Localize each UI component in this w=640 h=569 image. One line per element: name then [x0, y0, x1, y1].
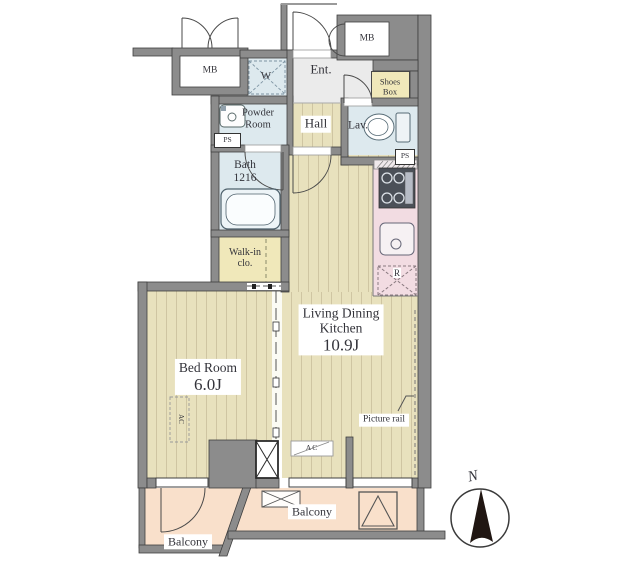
hall-label: Hall	[301, 116, 331, 133]
bedroom-size-label: 6.0J	[179, 375, 237, 394]
powder-room-label: Powder Room	[242, 107, 274, 131]
entrance-door-icon	[293, 12, 331, 50]
entrance-label: Ent.	[310, 63, 331, 78]
ldk-label-line1: Living Dining	[303, 305, 380, 320]
lavatory-label: Lav.	[348, 120, 368, 133]
shoes-box-label-line2: Box	[380, 87, 400, 97]
ps-right-label: PS	[395, 149, 415, 165]
balcony-left-label: Balcony	[164, 534, 212, 549]
entrance-floor	[293, 58, 373, 103]
balcony-right-label: Balcony	[288, 504, 336, 519]
mb-right-door-icon	[329, 24, 345, 56]
ac-living-label: AC	[306, 444, 318, 452]
compass-icon	[451, 489, 509, 547]
walkin-label-line1: Walk-in	[229, 247, 261, 258]
floor-plan: MB MB W Ent. Shoes Box Powder Room Hall …	[0, 0, 640, 569]
powder-label-line2: Room	[242, 119, 274, 131]
mb-left-door-icon	[182, 18, 212, 48]
picture-rail-label: Picture rail	[359, 414, 409, 427]
bath-label: Bath 1216	[234, 159, 257, 185]
w-closet-label: W	[261, 70, 271, 82]
walkin-closet-label: Walk-in clo.	[229, 247, 261, 269]
mb-right-label: MB	[360, 34, 375, 45]
ldk-label: Living Dining Kitchen 10.9J	[299, 304, 384, 355]
walkin-label-line2: clo.	[229, 258, 261, 269]
ldk-label-line2: Kitchen	[303, 320, 380, 335]
bath-label-line1: Bath	[234, 159, 257, 172]
bath-label-line2: 1216	[234, 172, 257, 185]
shoes-box-label: Shoes Box	[380, 77, 400, 96]
ldk-size-label: 10.9J	[303, 336, 380, 355]
bedroom-label: Bed Room 6.0J	[175, 359, 241, 395]
ps-left-label: PS	[214, 133, 241, 148]
room-divider-track	[272, 291, 282, 440]
mb-left-door2-icon	[208, 18, 238, 48]
bedroom-name-label: Bed Room	[179, 360, 237, 375]
windows	[156, 478, 412, 487]
ac-bedroom-label: AC	[176, 414, 184, 424]
compass-north-label: N	[466, 468, 479, 487]
mb-left-label: MB	[203, 66, 218, 77]
powder-label-line1: Powder	[242, 107, 274, 119]
refrigerator-label: R	[393, 268, 401, 278]
